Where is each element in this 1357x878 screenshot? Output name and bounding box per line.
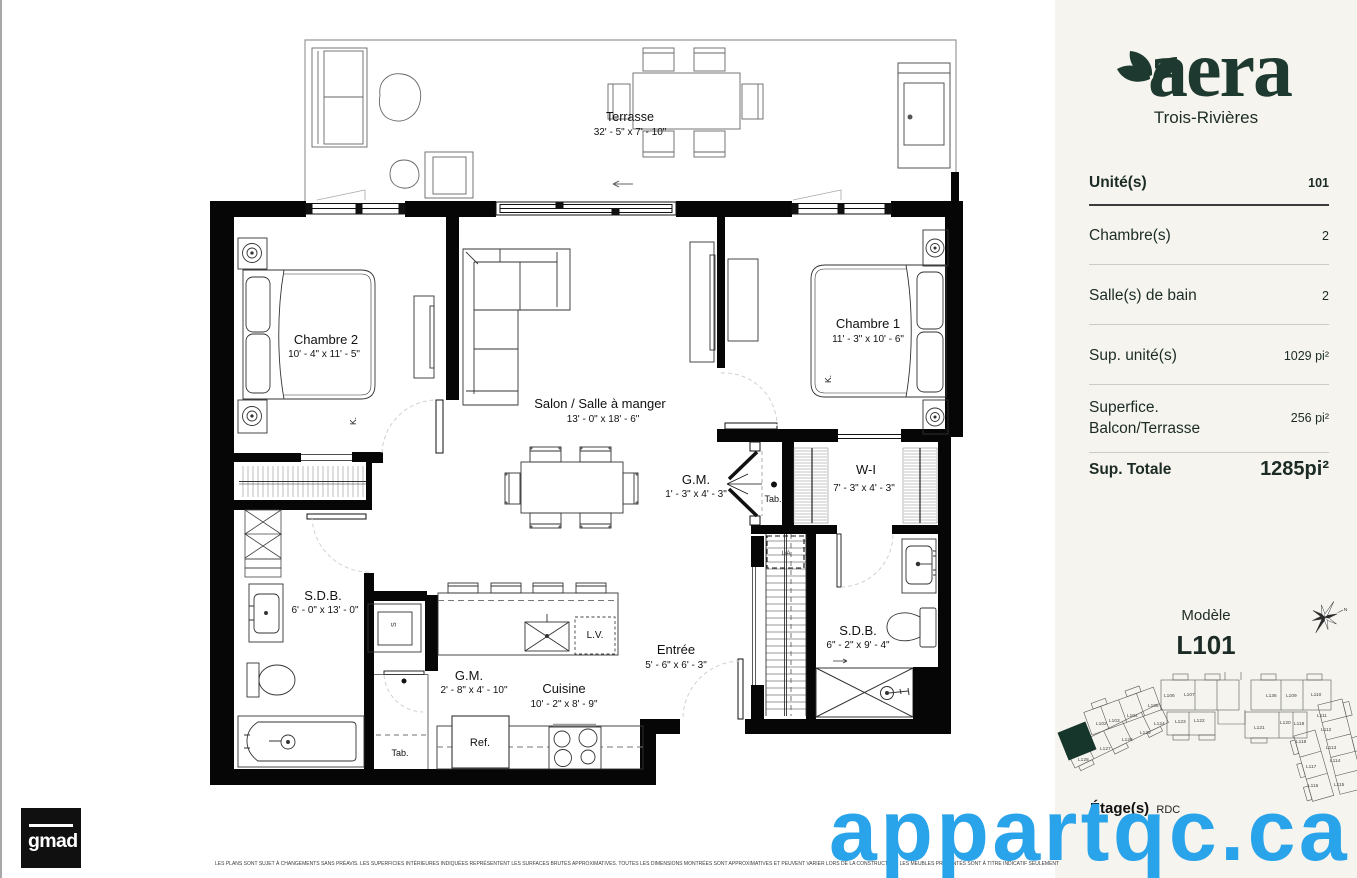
svg-text:S.D.B.: S.D.B.: [839, 623, 877, 638]
svg-text:10' - 4" x 11' - 5": 10' - 4" x 11' - 5": [288, 349, 360, 360]
svg-text:L114: L114: [1330, 758, 1341, 764]
svg-text:G.M.: G.M.: [682, 472, 710, 487]
svg-text:N: N: [1344, 607, 1348, 613]
svg-text:L106: L106: [1164, 693, 1175, 699]
svg-text:L121: L121: [1254, 725, 1265, 731]
svg-text:L109: L109: [1286, 693, 1297, 699]
svg-text:L105: L105: [1148, 703, 1159, 709]
svg-text:13' - 0" x 18' - 6": 13' - 0" x 18' - 6": [567, 414, 640, 425]
svg-text:Chambre 2: Chambre 2: [294, 332, 358, 347]
svg-text:L117: L117: [1306, 764, 1317, 770]
svg-text:W-I: W-I: [856, 462, 876, 477]
svg-text:L103: L103: [1109, 718, 1120, 724]
svg-text:L126: L126: [1122, 737, 1133, 743]
svg-text:Entrée: Entrée: [657, 642, 695, 657]
svg-text:L112: L112: [1321, 727, 1332, 733]
svg-text:Cuisine: Cuisine: [542, 681, 585, 696]
svg-text:G.M.: G.M.: [455, 668, 483, 683]
svg-text:L122: L122: [1194, 718, 1205, 724]
svg-text:L118: L118: [1296, 739, 1307, 745]
svg-text:L113: L113: [1326, 745, 1337, 751]
svg-text:6' - 0" x 13' - 0": 6' - 0" x 13' - 0": [291, 605, 359, 616]
svg-text:Salon / Salle à manger: Salon / Salle à manger: [534, 396, 666, 411]
svg-text:10' - 2" x 8' - 9": 10' - 2" x 8' - 9": [530, 699, 598, 710]
svg-text:Ref.: Ref.: [470, 737, 490, 749]
svg-text:L136: L136: [1266, 693, 1277, 699]
svg-text:Chambre 1: Chambre 1: [836, 316, 900, 331]
svg-text:L123: L123: [1175, 719, 1186, 725]
svg-text:L127: L127: [1100, 746, 1111, 752]
svg-text:L119: L119: [1294, 721, 1305, 727]
svg-text:L.V.: L.V.: [587, 630, 604, 641]
svg-text:L107: L107: [1184, 692, 1195, 698]
svg-text:S: S: [391, 622, 398, 627]
svg-text:K.: K.: [823, 375, 833, 383]
svg-text:7' - 3" x 4' - 3": 7' - 3" x 4' - 3": [833, 483, 895, 494]
svg-text:L124: L124: [1154, 721, 1165, 727]
svg-text:L/A: L/A: [781, 551, 790, 557]
svg-text:aera: aera: [1148, 26, 1292, 110]
svg-text:L104: L104: [1127, 713, 1138, 719]
svg-text:1' - 3" x 4' - 3": 1' - 3" x 4' - 3": [665, 489, 727, 500]
svg-text:5' - 6" x 6' - 3": 5' - 6" x 6' - 3": [645, 660, 707, 671]
svg-text:L128: L128: [1078, 757, 1089, 763]
svg-text:Tab.: Tab.: [391, 748, 408, 758]
svg-text:L110: L110: [1311, 692, 1322, 698]
svg-text:L125: L125: [1140, 730, 1151, 736]
svg-text:11' - 3" x 10' - 6": 11' - 3" x 10' - 6": [832, 334, 904, 345]
svg-text:L102: L102: [1096, 721, 1107, 727]
svg-text:L111: L111: [1317, 713, 1327, 719]
svg-text:K.: K.: [348, 417, 358, 425]
svg-text:32' - 5" x 7' - 10": 32' - 5" x 7' - 10": [594, 127, 667, 138]
svg-text:Terrasse: Terrasse: [606, 110, 654, 124]
svg-text:2' - 8" x 4' - 10": 2' - 8" x 4' - 10": [440, 685, 508, 696]
svg-text:Tab.: Tab.: [764, 494, 781, 504]
svg-text:6" - 2" x 9' - 4": 6" - 2" x 9' - 4": [826, 640, 890, 651]
svg-text:L120: L120: [1280, 720, 1291, 726]
svg-text:S.D.B.: S.D.B.: [304, 588, 342, 603]
